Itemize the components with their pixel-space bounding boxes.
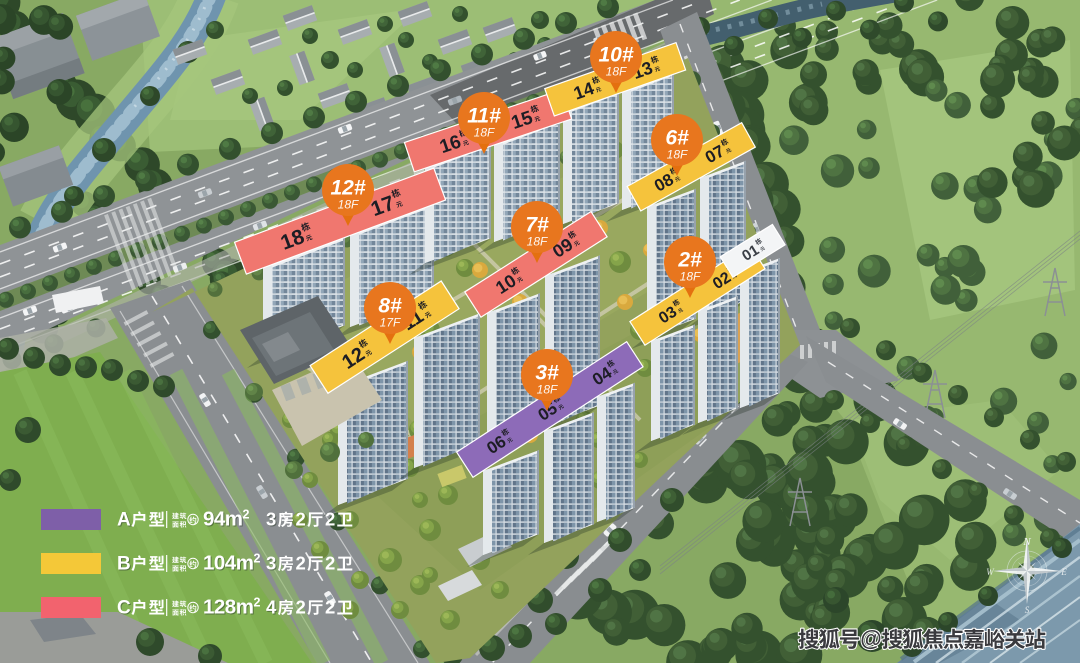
svg-text:2: 2 [325, 597, 335, 618]
svg-text:3: 3 [266, 509, 276, 530]
svg-text:104m2: 104m2 [203, 552, 260, 575]
svg-text:S: S [1025, 605, 1030, 615]
svg-text:3#: 3# [535, 362, 559, 385]
svg-text:E: E [1060, 567, 1067, 577]
svg-text:2: 2 [296, 597, 306, 618]
svg-text:@: @ [860, 626, 881, 651]
svg-text:10#: 10# [598, 44, 633, 67]
svg-text:2: 2 [325, 509, 335, 530]
svg-text:18F: 18F [537, 383, 558, 397]
svg-text:2: 2 [296, 509, 306, 530]
svg-text:18F: 18F [338, 198, 359, 212]
svg-text:18F: 18F [527, 235, 548, 249]
svg-text:N: N [1022, 536, 1031, 548]
svg-text:128m2: 128m2 [203, 596, 260, 619]
svg-text:6#: 6# [665, 127, 689, 150]
svg-text:3: 3 [266, 553, 276, 574]
svg-text:2#: 2# [677, 249, 702, 272]
svg-text:8#: 8# [378, 295, 402, 318]
svg-text:11#: 11# [467, 105, 501, 128]
svg-text:7#: 7# [525, 214, 549, 237]
svg-text:18F: 18F [667, 148, 688, 162]
svg-text:A: A [117, 510, 131, 531]
svg-text:2: 2 [325, 553, 335, 574]
svg-text:C: C [117, 598, 131, 619]
svg-text:2: 2 [296, 553, 306, 574]
svg-text:B: B [117, 554, 131, 575]
svg-text:17F: 17F [380, 316, 401, 330]
svg-text:4: 4 [266, 597, 277, 618]
svg-text:18F: 18F [474, 126, 495, 140]
svg-text:12#: 12# [330, 177, 365, 200]
svg-text:18F: 18F [680, 270, 701, 284]
svg-text:18F: 18F [606, 65, 627, 79]
